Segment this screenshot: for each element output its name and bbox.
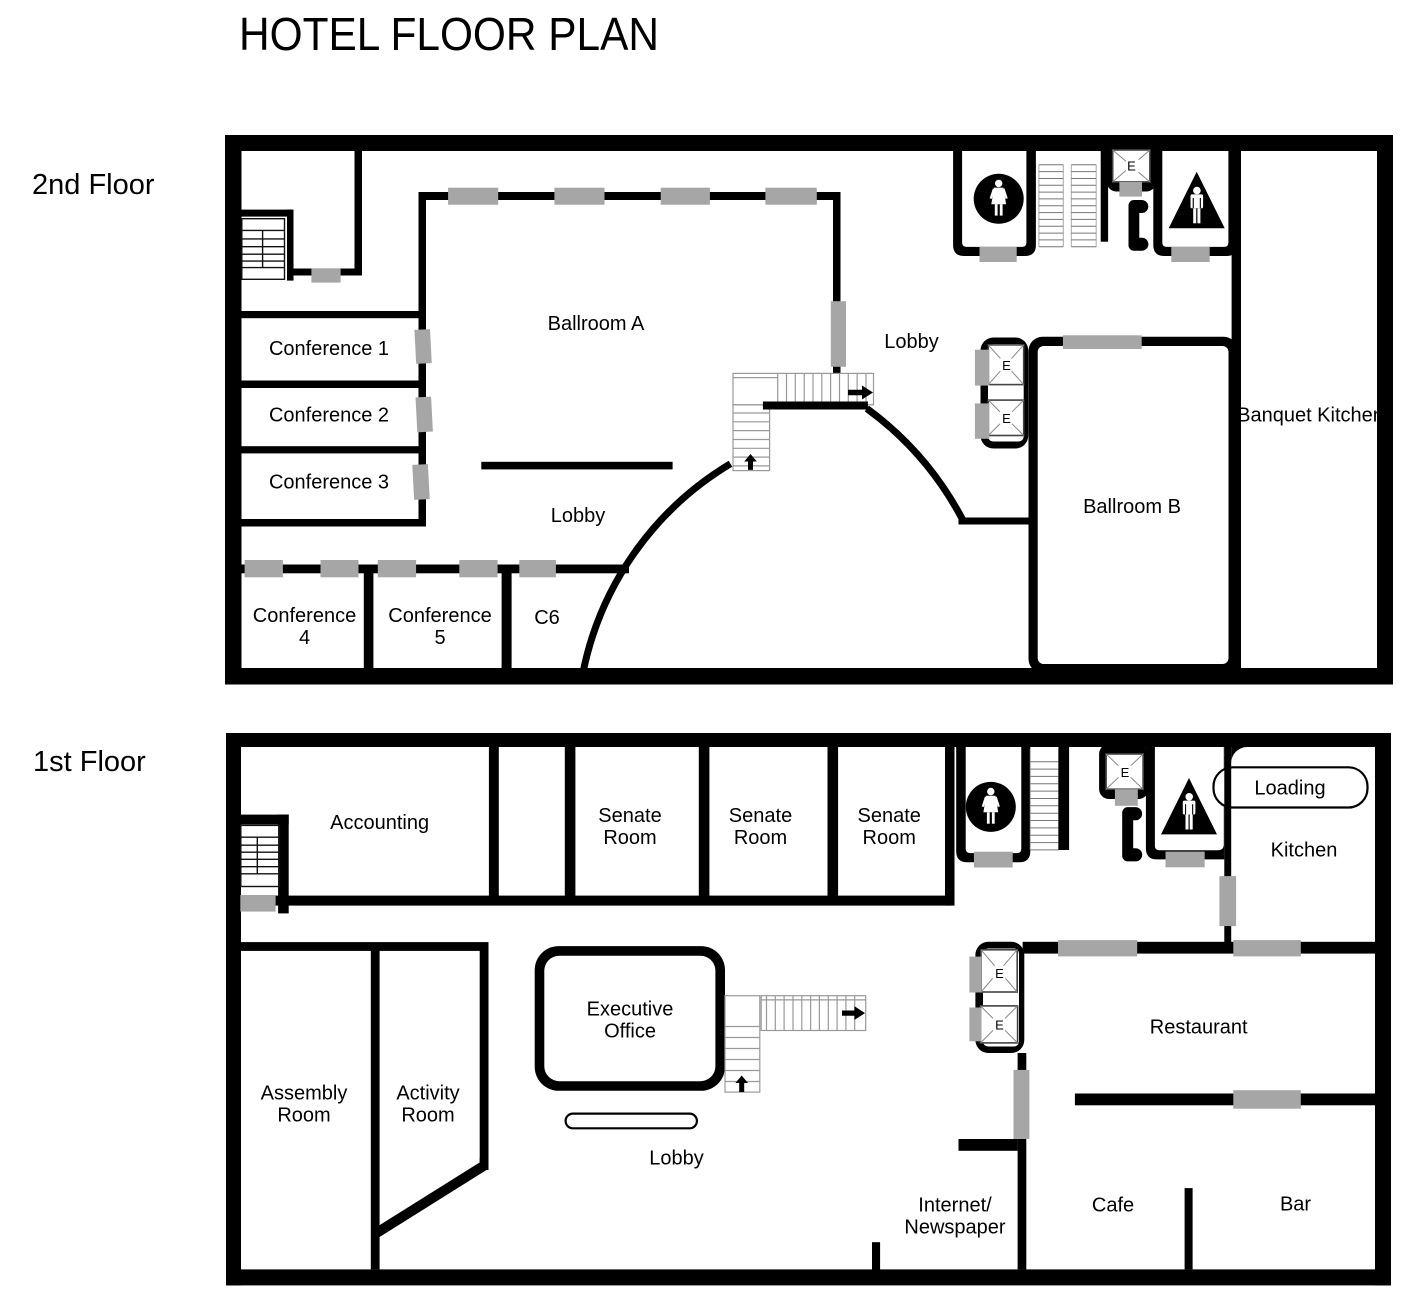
- svg-text:Banquet Kitchen: Banquet Kitchen: [1237, 405, 1384, 427]
- svg-text:Senate: Senate: [598, 805, 661, 827]
- svg-text:Assembly: Assembly: [261, 1083, 348, 1105]
- svg-text:Newspaper: Newspaper: [904, 1217, 1006, 1239]
- svg-text:Room: Room: [863, 827, 916, 849]
- svg-text:E: E: [995, 966, 1004, 981]
- svg-text:Conference: Conference: [388, 605, 491, 627]
- svg-text:C6: C6: [534, 607, 560, 629]
- svg-text:Conference: Conference: [253, 605, 356, 627]
- svg-text:Lobby: Lobby: [649, 1148, 704, 1170]
- svg-text:Kitchen: Kitchen: [1271, 840, 1338, 862]
- svg-text:Ballroom A: Ballroom A: [548, 313, 645, 335]
- svg-text:Office: Office: [604, 1021, 656, 1043]
- svg-text:Room: Room: [603, 827, 656, 849]
- svg-text:Accounting: Accounting: [330, 812, 429, 834]
- svg-text:HOTEL FLOOR PLAN: HOTEL FLOOR PLAN: [239, 8, 659, 60]
- svg-text:Cafe: Cafe: [1092, 1195, 1134, 1217]
- svg-text:Lobby: Lobby: [551, 505, 606, 527]
- svg-text:Ballroom B: Ballroom B: [1083, 496, 1181, 518]
- svg-text:E: E: [995, 1018, 1004, 1033]
- svg-text:Room: Room: [734, 827, 787, 849]
- svg-text:4: 4: [299, 627, 310, 649]
- svg-text:Senate: Senate: [729, 805, 792, 827]
- svg-text:Internet/: Internet/: [918, 1195, 992, 1217]
- svg-text:Room: Room: [277, 1105, 330, 1127]
- svg-text:Conference 3: Conference 3: [269, 472, 389, 494]
- svg-text:Executive: Executive: [587, 999, 674, 1021]
- svg-text:1st Floor: 1st Floor: [33, 746, 146, 778]
- svg-text:E: E: [1002, 358, 1011, 373]
- svg-text:Restaurant: Restaurant: [1150, 1017, 1248, 1039]
- svg-text:Conference 1: Conference 1: [269, 338, 389, 360]
- svg-text:Conference 2: Conference 2: [269, 405, 389, 427]
- svg-text:5: 5: [434, 627, 445, 649]
- svg-text:Senate: Senate: [858, 805, 921, 827]
- svg-text:Loading: Loading: [1254, 778, 1325, 800]
- svg-text:Bar: Bar: [1280, 1194, 1311, 1216]
- svg-text:Room: Room: [401, 1105, 454, 1127]
- svg-text:2nd Floor: 2nd Floor: [32, 169, 155, 201]
- svg-text:Activity: Activity: [396, 1083, 459, 1105]
- svg-text:E: E: [1121, 765, 1130, 780]
- svg-text:E: E: [1002, 411, 1011, 426]
- svg-text:Lobby: Lobby: [884, 331, 939, 353]
- svg-text:E: E: [1127, 159, 1136, 174]
